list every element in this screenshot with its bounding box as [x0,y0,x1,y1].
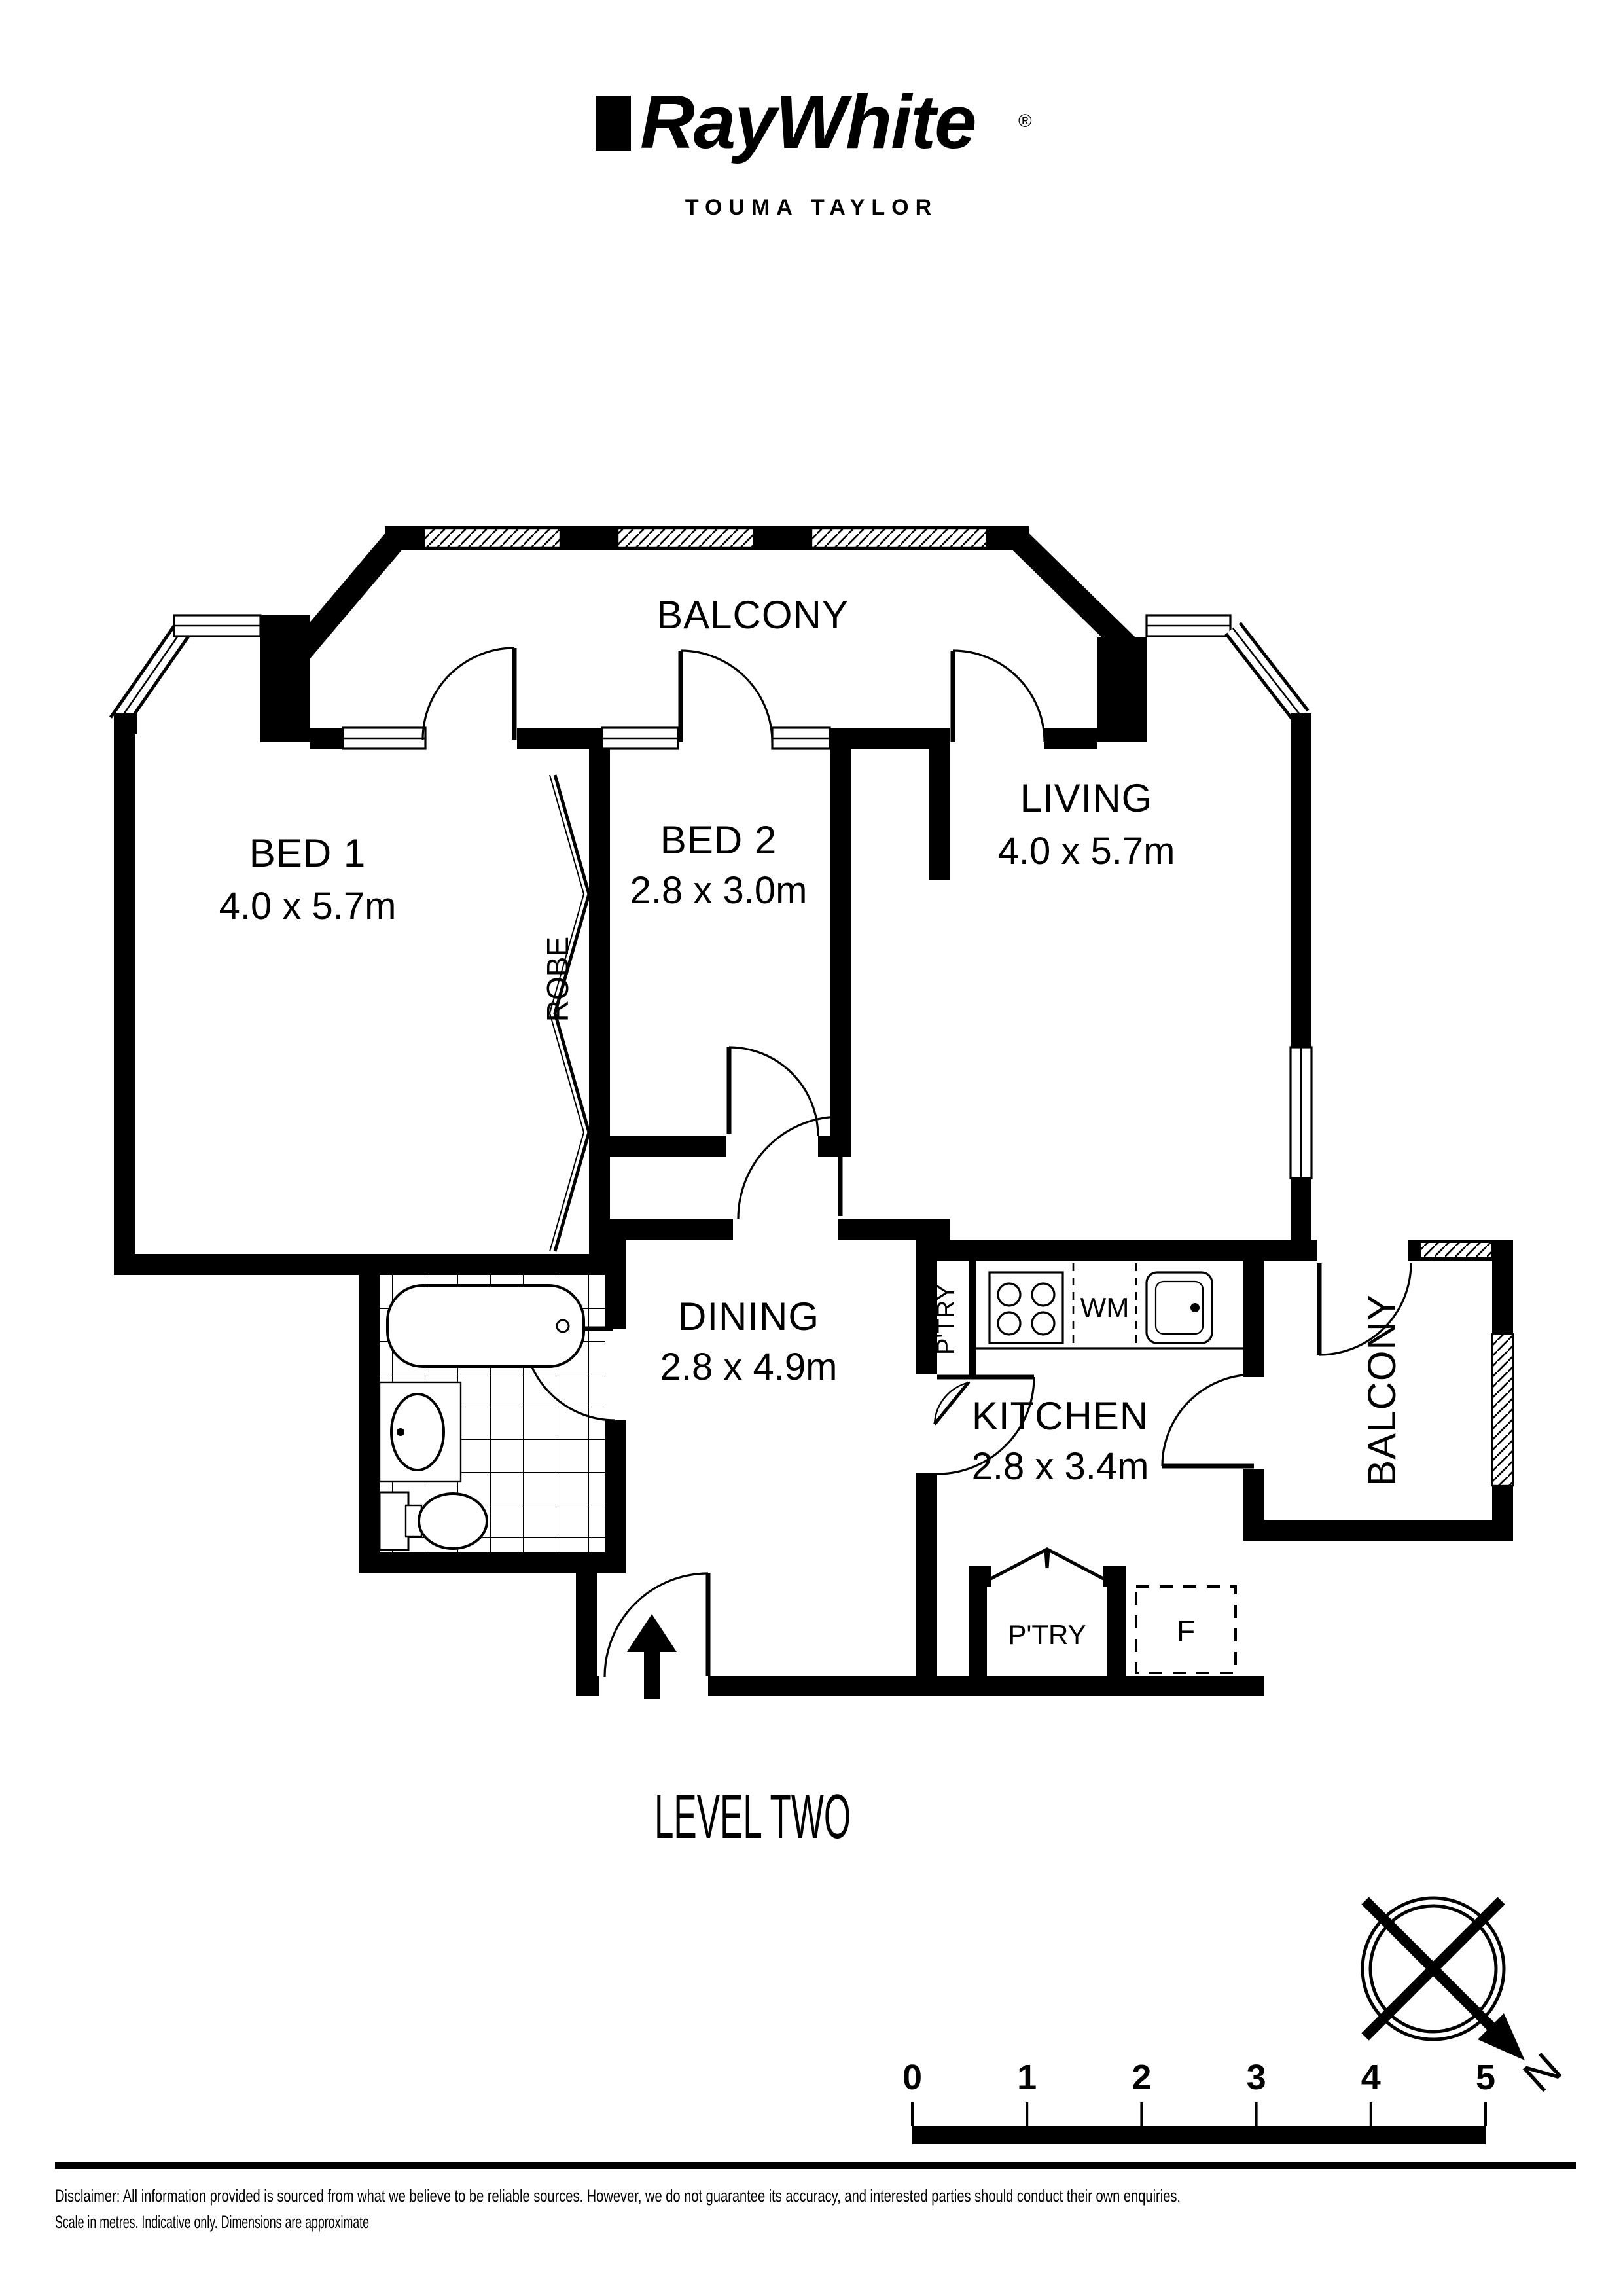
level-label: LEVEL TWO [654,1782,851,1852]
balcony-right-railing-top-icon [1420,1242,1492,1258]
scale-ticks [912,2102,1486,2126]
kitchen-label: KITCHEN [972,1394,1149,1438]
hall-dining-door-arc [738,1117,840,1219]
stove-burner-icon [1032,1312,1054,1335]
pantry-kitchen-label: P'TRY [933,1284,960,1355]
robe-label: ROBE [541,937,575,1022]
scale-tick-label: 3 [1247,2058,1266,2097]
bed1-bay-window [118,628,183,723]
basin-tap-icon [397,1428,404,1436]
floorplan-page: { "brand": { "name": "RayWhite", "regist… [0,0,1623,2296]
dining-kitchen-wall-lower [916,1473,937,1696]
balcony-right-bottom-wall [1243,1520,1513,1541]
scale-tick-label: 1 [1017,2058,1037,2097]
bathtub [387,1285,584,1367]
bed1-balcony-door-arc [423,648,514,740]
scale-tick-label: 0 [902,2058,922,2097]
bed2: BED 2 2.8 x 3.0m [610,749,851,1157]
bed1-label: BED 1 [249,831,366,875]
living: LIVING 4.0 x 5.7m [998,615,1311,1240]
brand-logo: RayWhite ® TOUMA TAYLOR [596,79,1032,220]
balcony-railing-icon [424,529,560,547]
balcony-right-railing-icon [1492,1334,1513,1486]
compass: N [1363,1898,1571,2102]
toilet-bowl [419,1494,487,1549]
disclaimer-line2: Scale in metres. Indicative only. Dimens… [55,2212,369,2232]
bathroom-left-wall [359,1275,380,1573]
bathroom-right-wall-upper [605,1240,626,1329]
stove-burner-icon [998,1312,1020,1335]
bed1: BED 1 4.0 x 5.7m [114,615,610,1275]
balcony-top-label: BALCONY [656,593,849,637]
entry-arrow-icon [627,1614,677,1699]
scale-bar-fill [912,2126,1486,2144]
pantry-closet-label: P'TRY [1008,1619,1086,1650]
stove-burner-icon [1032,1283,1054,1306]
living-dims: 4.0 x 5.7m [998,830,1175,872]
balcony-top: BALCONY [275,526,1136,682]
living-label: LIVING [1020,776,1153,820]
dining-dims: 2.8 x 4.9m [660,1346,838,1388]
footer-divider [55,2162,1576,2169]
scale-bar: 0 1 2 3 4 5 [902,2058,1495,2144]
living-balcony-door-arc [953,651,1044,742]
footer: Disclaimer: All information provided is … [55,2162,1576,2232]
scale-tick-label: 2 [1132,2058,1151,2097]
balcony-right-angled-wall [1017,538,1136,655]
floorplan-svg: RayWhite ® TOUMA TAYLOR BALCONY [0,0,1623,2296]
brand-name: RayWhite [640,79,976,164]
balcony-right-pillar [1097,637,1147,742]
bed2-balcony-door-arc [681,651,772,742]
bathroom [359,1240,626,1573]
pantry-kitchen-door-leaf [935,1382,969,1424]
bed1-left-wall [114,713,135,1254]
balcony-left-pillar [260,615,310,742]
robe-right-wall [589,749,610,1254]
balcony-railing-icon [811,529,987,547]
raywhite-logo-square-icon [596,96,631,151]
bed1-bottom-wall [114,1254,610,1275]
bottom-wall [708,1676,1264,1696]
kitchen: P'TRY WM KITCHEN 2.8 x 3.4m P'TRY F [933,1261,1264,1676]
balcony-railing-icon [618,529,754,547]
sink-drain-icon [1190,1303,1200,1312]
kitchen-right-wall-upper [1243,1261,1264,1377]
stove [990,1272,1063,1343]
hallway [605,749,950,1240]
robe: ROBE [541,749,610,1254]
scale-tick-label: 5 [1476,2058,1495,2097]
bathtub-tap-icon [557,1320,569,1332]
kitchen-dims: 2.8 x 3.4m [972,1445,1149,1488]
living-right-wall-lower [1291,1178,1311,1240]
bed2-dims: 2.8 x 3.0m [630,869,808,912]
balcony-right-label: BALCONY [1360,1294,1404,1486]
bed2-label: BED 2 [660,818,777,862]
bed2-right-wall [830,749,851,1157]
pantry-kitchen-wall [969,1261,976,1377]
bathroom-right-wall-lower [605,1420,626,1573]
fridge-label: F [1177,1614,1195,1648]
stove-burner-icon [998,1283,1020,1306]
dining-label: DINING [678,1295,819,1338]
living-left-wall [929,749,950,880]
disclaimer-line1: Disclaimer: All information provided is … [55,2186,1181,2206]
compass-north-label: N [1514,2043,1571,2102]
office-name: TOUMA TAYLOR [685,195,938,220]
living-right-wall-upper [1291,713,1311,1047]
scale-tick-label: 4 [1361,2058,1381,2097]
bed1-dims: 4.0 x 5.7m [219,885,397,927]
living-bay-window [1233,628,1301,716]
washing-machine-label: WM [1080,1292,1130,1323]
balcony-right: BALCONY [1243,1240,1513,1541]
toilet-cistern [380,1492,408,1550]
kitchen-balcony-door-arc [1162,1374,1254,1466]
pantry-closet-bifold-door [991,1550,1103,1579]
registered-mark: ® [1018,111,1032,131]
